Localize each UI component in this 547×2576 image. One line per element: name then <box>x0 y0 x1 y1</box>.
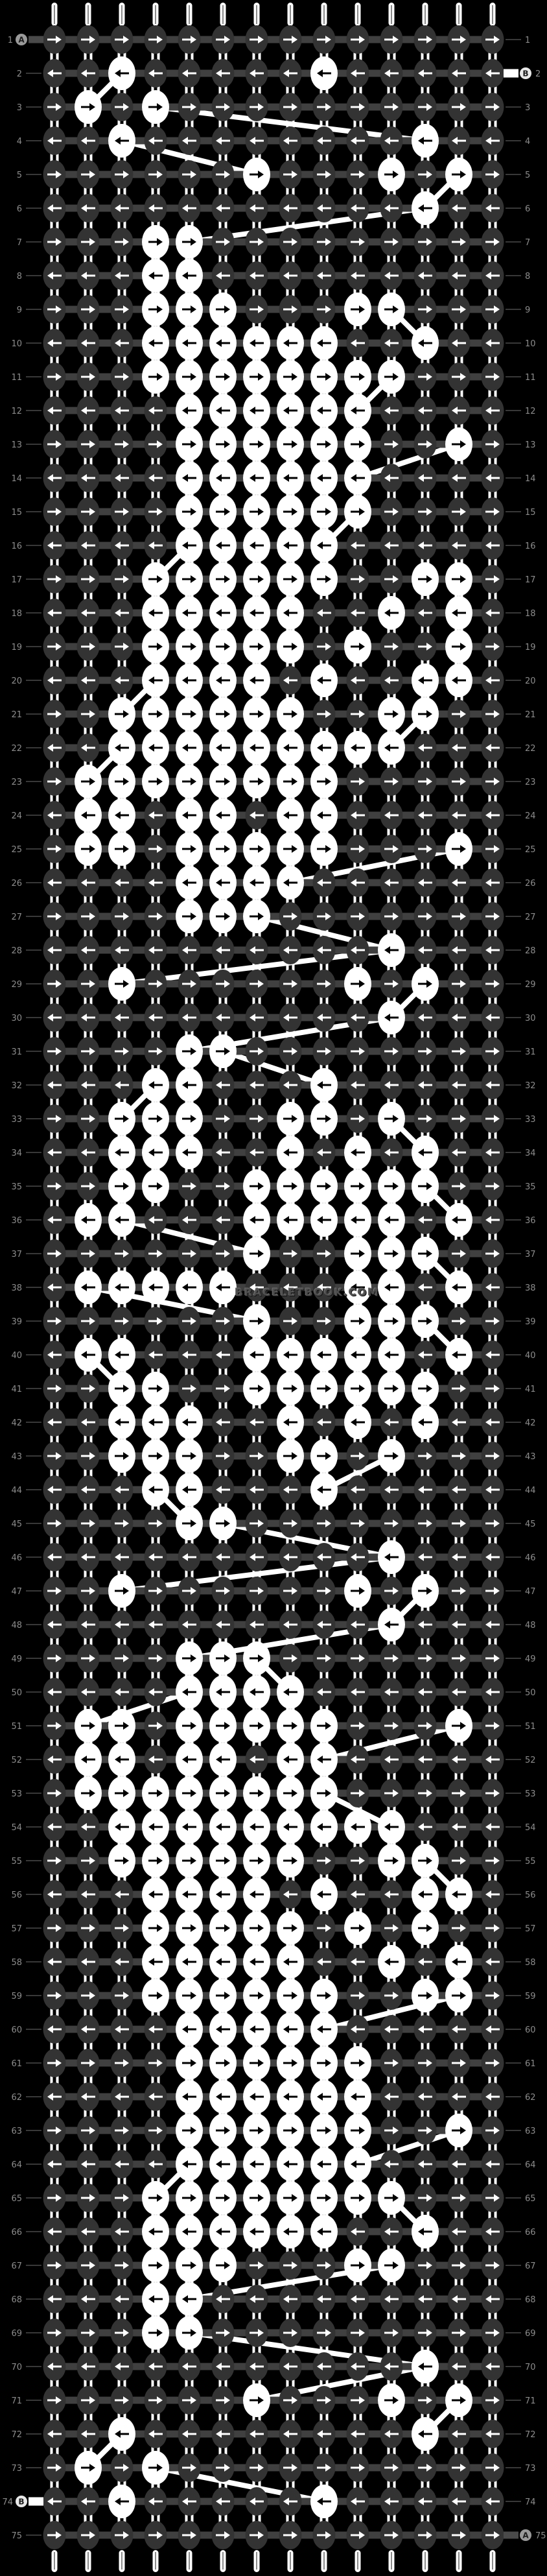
pattern-cell[interactable] <box>111 329 134 357</box>
pattern-cell[interactable] <box>43 59 66 88</box>
pattern-cell[interactable] <box>43 93 66 121</box>
pattern-cell[interactable] <box>142 225 169 259</box>
pattern-cell[interactable] <box>482 835 504 863</box>
pattern-cell[interactable] <box>111 666 134 695</box>
pattern-cell[interactable] <box>43 868 66 897</box>
pattern-cell[interactable] <box>43 464 66 492</box>
pattern-cell[interactable] <box>246 194 268 222</box>
pattern-cell[interactable] <box>380 126 403 155</box>
pattern-cell[interactable] <box>380 59 403 88</box>
pattern-cell[interactable] <box>246 1003 268 1032</box>
pattern-cell[interactable] <box>142 90 169 124</box>
pattern-cell[interactable] <box>313 970 336 998</box>
pattern-cell[interactable] <box>347 835 369 863</box>
pattern-cell[interactable] <box>108 697 135 731</box>
pattern-cell[interactable] <box>178 59 201 88</box>
pattern-cell[interactable] <box>482 295 504 324</box>
pattern-cell[interactable] <box>412 562 439 596</box>
pattern-cell[interactable] <box>176 1102 203 1136</box>
pattern-cell[interactable] <box>448 261 471 290</box>
pattern-cell[interactable] <box>111 936 134 964</box>
pattern-cell[interactable] <box>142 663 169 697</box>
pattern-cell[interactable] <box>108 56 135 90</box>
pattern-cell[interactable] <box>344 461 371 495</box>
pattern-cell[interactable] <box>482 126 504 155</box>
pattern-cell[interactable] <box>448 126 471 155</box>
pattern-cell[interactable] <box>277 360 304 394</box>
pattern-cell[interactable] <box>448 93 471 121</box>
pattern-cell[interactable] <box>209 596 237 630</box>
pattern-cell[interactable] <box>378 697 405 731</box>
pattern-cell[interactable] <box>77 936 100 964</box>
pattern-cell[interactable] <box>313 599 336 627</box>
pattern-cell[interactable] <box>43 902 66 931</box>
pattern-cell[interactable] <box>414 936 437 964</box>
pattern-cell[interactable] <box>279 59 302 88</box>
pattern-cell[interactable] <box>176 427 203 461</box>
pattern-cell[interactable] <box>209 798 237 832</box>
pattern-cell[interactable] <box>246 1071 268 1099</box>
pattern-cell[interactable] <box>347 700 369 728</box>
pattern-cell[interactable] <box>448 194 471 222</box>
pattern-cell[interactable] <box>279 194 302 222</box>
pattern-cell[interactable] <box>178 126 201 155</box>
pattern-cell[interactable] <box>43 228 66 256</box>
pattern-cell[interactable] <box>176 292 203 326</box>
pattern-cell[interactable] <box>277 562 304 596</box>
pattern-cell[interactable] <box>77 1071 100 1099</box>
pattern-cell[interactable] <box>176 765 203 798</box>
pattern-cell[interactable] <box>43 329 66 357</box>
pattern-cell[interactable] <box>43 835 66 863</box>
pattern-cell[interactable] <box>482 1037 504 1066</box>
pattern-cell[interactable] <box>448 1071 471 1099</box>
pattern-cell[interactable] <box>77 25 100 54</box>
pattern-cell[interactable] <box>77 970 100 998</box>
pattern-cell[interactable] <box>111 1003 134 1032</box>
pattern-cell[interactable] <box>142 765 169 798</box>
pattern-cell[interactable] <box>313 902 336 931</box>
pattern-cell[interactable] <box>178 93 201 121</box>
pattern-cell[interactable] <box>108 798 135 832</box>
pattern-cell[interactable] <box>313 936 336 964</box>
pattern-cell[interactable] <box>448 295 471 324</box>
pattern-cell[interactable] <box>77 599 100 627</box>
pattern-cell[interactable] <box>176 1068 203 1102</box>
pattern-cell[interactable] <box>448 396 471 425</box>
pattern-cell[interactable] <box>43 936 66 964</box>
pattern-cell[interactable] <box>243 394 270 427</box>
pattern-cell[interactable] <box>482 565 504 593</box>
pattern-cell[interactable] <box>75 765 102 798</box>
pattern-cell[interactable] <box>378 731 405 765</box>
pattern-cell[interactable] <box>448 801 471 829</box>
pattern-cell[interactable] <box>414 1104 437 1133</box>
pattern-cell[interactable] <box>347 666 369 695</box>
pattern-cell[interactable] <box>176 495 203 529</box>
pattern-cell[interactable] <box>310 765 338 798</box>
pattern-cell[interactable] <box>378 1102 405 1136</box>
pattern-cell[interactable] <box>277 765 304 798</box>
pattern-cell[interactable] <box>246 59 268 88</box>
pattern-cell[interactable] <box>243 360 270 394</box>
pattern-cell[interactable] <box>209 461 237 495</box>
pattern-cell[interactable] <box>380 329 403 357</box>
pattern-cell[interactable] <box>414 25 437 54</box>
pattern-cell[interactable] <box>347 261 369 290</box>
pattern-cell[interactable] <box>482 363 504 391</box>
pattern-cell[interactable] <box>414 1037 437 1066</box>
pattern-cell[interactable] <box>43 1071 66 1099</box>
pattern-cell[interactable] <box>142 326 169 360</box>
pattern-cell[interactable] <box>77 228 100 256</box>
pattern-cell[interactable] <box>209 394 237 427</box>
pattern-cell[interactable] <box>178 194 201 222</box>
pattern-cell[interactable] <box>448 936 471 964</box>
pattern-cell[interactable] <box>176 663 203 697</box>
pattern-cell[interactable] <box>243 461 270 495</box>
pattern-cell[interactable] <box>482 801 504 829</box>
pattern-cell[interactable] <box>145 902 167 931</box>
pattern-cell[interactable] <box>412 967 439 1001</box>
pattern-cell[interactable] <box>77 396 100 425</box>
pattern-cell[interactable] <box>77 632 100 661</box>
pattern-cell[interactable] <box>414 733 437 762</box>
pattern-cell[interactable] <box>43 632 66 661</box>
pattern-cell[interactable] <box>277 866 304 900</box>
pattern-cell[interactable] <box>176 529 203 562</box>
pattern-cell[interactable] <box>347 767 369 796</box>
pattern-cell[interactable] <box>445 596 472 630</box>
pattern-cell[interactable] <box>277 731 304 765</box>
pattern-cell[interactable] <box>246 228 268 256</box>
pattern-cell[interactable] <box>111 228 134 256</box>
pattern-cell[interactable] <box>43 733 66 762</box>
pattern-cell[interactable] <box>145 126 167 155</box>
pattern-cell[interactable] <box>378 1001 405 1034</box>
pattern-cell[interactable] <box>43 363 66 391</box>
pattern-cell[interactable] <box>482 1071 504 1099</box>
pattern-cell[interactable] <box>142 731 169 765</box>
pattern-cell[interactable] <box>344 394 371 427</box>
pattern-cell[interactable] <box>414 295 437 324</box>
pattern-cell[interactable] <box>176 394 203 427</box>
pattern-cell[interactable] <box>448 970 471 998</box>
pattern-cell[interactable] <box>212 160 235 189</box>
pattern-cell[interactable] <box>448 902 471 931</box>
pattern-cell[interactable] <box>111 160 134 189</box>
pattern-cell[interactable] <box>246 1104 268 1133</box>
pattern-cell[interactable] <box>111 868 134 897</box>
pattern-cell[interactable] <box>279 936 302 964</box>
pattern-cell[interactable] <box>445 832 472 866</box>
pattern-cell[interactable] <box>310 529 338 562</box>
pattern-cell[interactable] <box>380 396 403 425</box>
pattern-cell[interactable] <box>43 1037 66 1066</box>
pattern-cell[interactable] <box>246 1037 268 1066</box>
pattern-cell[interactable] <box>243 832 270 866</box>
pattern-cell[interactable] <box>176 326 203 360</box>
pattern-cell[interactable] <box>111 565 134 593</box>
pattern-cell[interactable] <box>344 967 371 1001</box>
pattern-cell[interactable] <box>414 363 437 391</box>
pattern-cell[interactable] <box>176 259 203 292</box>
pattern-cell[interactable] <box>313 126 336 155</box>
pattern-cell[interactable] <box>111 261 134 290</box>
pattern-cell[interactable] <box>209 697 237 731</box>
pattern-cell[interactable] <box>482 497 504 526</box>
pattern-cell[interactable] <box>448 363 471 391</box>
pattern-cell[interactable] <box>448 1104 471 1133</box>
pattern-cell[interactable] <box>414 464 437 492</box>
pattern-cell[interactable] <box>448 868 471 897</box>
pattern-cell[interactable] <box>111 295 134 324</box>
pattern-cell[interactable] <box>445 562 472 596</box>
pattern-cell[interactable] <box>313 228 336 256</box>
pattern-cell[interactable] <box>347 1104 369 1133</box>
pattern-cell[interactable] <box>77 295 100 324</box>
pattern-cell[interactable] <box>482 93 504 121</box>
pattern-cell[interactable] <box>310 326 338 360</box>
pattern-cell[interactable] <box>176 900 203 933</box>
pattern-cell[interactable] <box>448 464 471 492</box>
pattern-cell[interactable] <box>412 191 439 225</box>
pattern-cell[interactable] <box>380 228 403 256</box>
pattern-cell[interactable] <box>176 866 203 900</box>
pattern-cell[interactable] <box>380 1037 403 1066</box>
pattern-cell[interactable] <box>212 194 235 222</box>
pattern-cell[interactable] <box>313 1037 336 1066</box>
pattern-cell[interactable] <box>176 596 203 630</box>
pattern-cell[interactable] <box>77 700 100 728</box>
pattern-cell[interactable] <box>310 394 338 427</box>
pattern-cell[interactable] <box>176 562 203 596</box>
pattern-cell[interactable] <box>482 599 504 627</box>
pattern-cell[interactable] <box>176 1034 203 1068</box>
pattern-cell[interactable] <box>279 902 302 931</box>
pattern-cell[interactable] <box>380 261 403 290</box>
pattern-cell[interactable] <box>277 495 304 529</box>
pattern-cell[interactable] <box>347 565 369 593</box>
pattern-cell[interactable] <box>380 194 403 222</box>
pattern-cell[interactable] <box>380 835 403 863</box>
pattern-cell[interactable] <box>414 497 437 526</box>
pattern-cell[interactable] <box>43 970 66 998</box>
pattern-cell[interactable] <box>414 531 437 560</box>
pattern-cell[interactable] <box>310 731 338 765</box>
pattern-cell[interactable] <box>243 562 270 596</box>
pattern-cell[interactable] <box>448 497 471 526</box>
pattern-cell[interactable] <box>176 225 203 259</box>
pattern-cell[interactable] <box>145 801 167 829</box>
pattern-cell[interactable] <box>43 430 66 459</box>
pattern-cell[interactable] <box>246 295 268 324</box>
pattern-cell[interactable] <box>145 835 167 863</box>
pattern-cell[interactable] <box>243 326 270 360</box>
pattern-cell[interactable] <box>77 59 100 88</box>
pattern-cell[interactable] <box>448 733 471 762</box>
pattern-cell[interactable] <box>43 1003 66 1032</box>
pattern-cell[interactable] <box>414 396 437 425</box>
pattern-cell[interactable] <box>43 666 66 695</box>
pattern-cell[interactable] <box>246 25 268 54</box>
pattern-cell[interactable] <box>43 295 66 324</box>
pattern-cell[interactable] <box>108 731 135 765</box>
pattern-cell[interactable] <box>43 396 66 425</box>
pattern-cell[interactable] <box>246 936 268 964</box>
pattern-cell[interactable] <box>212 25 235 54</box>
pattern-cell[interactable] <box>145 1003 167 1032</box>
pattern-cell[interactable] <box>380 902 403 931</box>
pattern-cell[interactable] <box>111 25 134 54</box>
pattern-cell[interactable] <box>482 733 504 762</box>
pattern-cell[interactable] <box>145 936 167 964</box>
pattern-cell[interactable] <box>145 531 167 560</box>
pattern-cell[interactable] <box>482 868 504 897</box>
pattern-cell[interactable] <box>445 630 472 663</box>
pattern-cell[interactable] <box>43 565 66 593</box>
pattern-cell[interactable] <box>482 59 504 88</box>
pattern-cell[interactable] <box>378 596 405 630</box>
pattern-cell[interactable] <box>448 25 471 54</box>
pattern-cell[interactable] <box>279 295 302 324</box>
pattern-cell[interactable] <box>347 194 369 222</box>
pattern-cell[interactable] <box>243 529 270 562</box>
pattern-cell[interactable] <box>77 1003 100 1032</box>
pattern-cell[interactable] <box>313 295 336 324</box>
pattern-cell[interactable] <box>344 427 371 461</box>
pattern-cell[interactable] <box>310 562 338 596</box>
pattern-cell[interactable] <box>313 160 336 189</box>
pattern-cell[interactable] <box>108 124 135 158</box>
pattern-cell[interactable] <box>482 767 504 796</box>
pattern-cell[interactable] <box>209 765 237 798</box>
pattern-cell[interactable] <box>277 326 304 360</box>
pattern-cell[interactable] <box>246 261 268 290</box>
pattern-cell[interactable] <box>380 464 403 492</box>
pattern-cell[interactable] <box>176 798 203 832</box>
pattern-cell[interactable] <box>77 126 100 155</box>
pattern-cell[interactable] <box>347 59 369 88</box>
pattern-cell[interactable] <box>212 228 235 256</box>
pattern-cell[interactable] <box>178 160 201 189</box>
pattern-cell[interactable] <box>313 194 336 222</box>
pattern-cell[interactable] <box>414 261 437 290</box>
pattern-cell[interactable] <box>111 531 134 560</box>
pattern-cell[interactable] <box>344 292 371 326</box>
pattern-cell[interactable] <box>279 666 302 695</box>
pattern-cell[interactable] <box>448 59 471 88</box>
pattern-cell[interactable] <box>482 396 504 425</box>
pattern-cell[interactable] <box>243 630 270 663</box>
pattern-cell[interactable] <box>277 461 304 495</box>
pattern-cell[interactable] <box>243 900 270 933</box>
pattern-cell[interactable] <box>414 160 437 189</box>
pattern-cell[interactable] <box>43 767 66 796</box>
pattern-cell[interactable] <box>482 194 504 222</box>
pattern-cell[interactable] <box>310 1068 338 1102</box>
pattern-cell[interactable] <box>77 261 100 290</box>
pattern-cell[interactable] <box>77 1104 100 1133</box>
pattern-cell[interactable] <box>313 25 336 54</box>
pattern-cell[interactable] <box>176 630 203 663</box>
pattern-cell[interactable] <box>412 326 439 360</box>
pattern-cell[interactable] <box>347 1003 369 1032</box>
pattern-cell[interactable] <box>412 124 439 158</box>
pattern-cell[interactable] <box>108 832 135 866</box>
pattern-cell[interactable] <box>178 936 201 964</box>
pattern-cell[interactable] <box>310 832 338 866</box>
pattern-cell[interactable] <box>145 868 167 897</box>
pattern-cell[interactable] <box>347 1071 369 1099</box>
pattern-cell[interactable] <box>243 596 270 630</box>
pattern-cell[interactable] <box>75 798 102 832</box>
pattern-cell[interactable] <box>43 700 66 728</box>
pattern-cell[interactable] <box>448 228 471 256</box>
pattern-cell[interactable] <box>209 1034 237 1068</box>
pattern-cell[interactable] <box>347 902 369 931</box>
pattern-cell[interactable] <box>142 259 169 292</box>
pattern-cell[interactable] <box>313 700 336 728</box>
pattern-cell[interactable] <box>246 970 268 998</box>
pattern-cell[interactable] <box>313 868 336 897</box>
pattern-cell[interactable] <box>178 1003 201 1032</box>
pattern-cell[interactable] <box>414 59 437 88</box>
pattern-cell[interactable] <box>77 666 100 695</box>
pattern-cell[interactable] <box>380 531 403 560</box>
pattern-cell[interactable] <box>111 464 134 492</box>
pattern-cell[interactable] <box>310 798 338 832</box>
pattern-cell[interactable] <box>209 495 237 529</box>
pattern-cell[interactable] <box>176 360 203 394</box>
pattern-cell[interactable] <box>142 292 169 326</box>
pattern-cell[interactable] <box>209 731 237 765</box>
pattern-cell[interactable] <box>77 430 100 459</box>
pattern-cell[interactable] <box>43 194 66 222</box>
pattern-cell[interactable] <box>212 936 235 964</box>
pattern-cell[interactable] <box>246 126 268 155</box>
pattern-cell[interactable] <box>279 1037 302 1066</box>
pattern-cell[interactable] <box>347 126 369 155</box>
pattern-cell[interactable] <box>482 902 504 931</box>
pattern-cell[interactable] <box>43 160 66 189</box>
pattern-cell[interactable] <box>77 497 100 526</box>
pattern-cell[interactable] <box>176 461 203 495</box>
pattern-cell[interactable] <box>482 970 504 998</box>
pattern-cell[interactable] <box>380 666 403 695</box>
pattern-cell[interactable] <box>279 228 302 256</box>
pattern-cell[interactable] <box>246 93 268 121</box>
pattern-cell[interactable] <box>212 1104 235 1133</box>
pattern-cell[interactable] <box>77 902 100 931</box>
pattern-cell[interactable] <box>448 329 471 357</box>
pattern-cell[interactable] <box>43 1104 66 1133</box>
pattern-cell[interactable] <box>414 835 437 863</box>
pattern-cell[interactable] <box>145 970 167 998</box>
pattern-cell[interactable] <box>344 630 371 663</box>
pattern-cell[interactable] <box>279 25 302 54</box>
pattern-cell[interactable] <box>448 1037 471 1066</box>
pattern-cell[interactable] <box>380 868 403 897</box>
pattern-cell[interactable] <box>212 970 235 998</box>
pattern-cell[interactable] <box>380 1071 403 1099</box>
pattern-cell[interactable] <box>277 832 304 866</box>
pattern-cell[interactable] <box>77 363 100 391</box>
pattern-cell[interactable] <box>145 396 167 425</box>
pattern-cell[interactable] <box>414 228 437 256</box>
pattern-cell[interactable] <box>347 93 369 121</box>
pattern-cell[interactable] <box>277 394 304 427</box>
